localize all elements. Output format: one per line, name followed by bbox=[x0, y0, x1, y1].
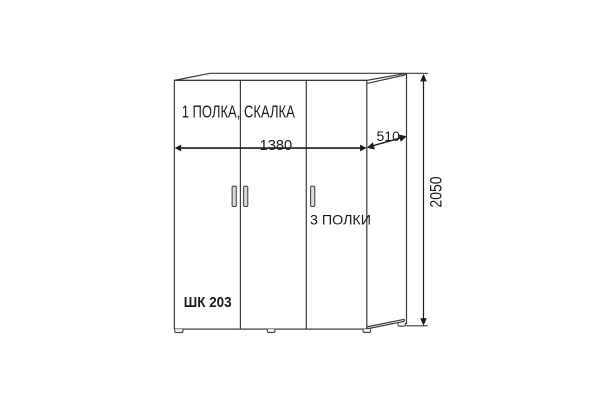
svg-text:3 ПОЛКИ: 3 ПОЛКИ bbox=[310, 211, 371, 227]
svg-text:2050: 2050 bbox=[427, 176, 445, 207]
svg-text:ШК 203: ШК 203 bbox=[184, 294, 232, 311]
svg-text:1 ПОЛКА, СКАЛКА: 1 ПОЛКА, СКАЛКА bbox=[182, 101, 295, 121]
svg-text:510: 510 bbox=[377, 128, 401, 144]
svg-text:1380: 1380 bbox=[260, 137, 293, 154]
